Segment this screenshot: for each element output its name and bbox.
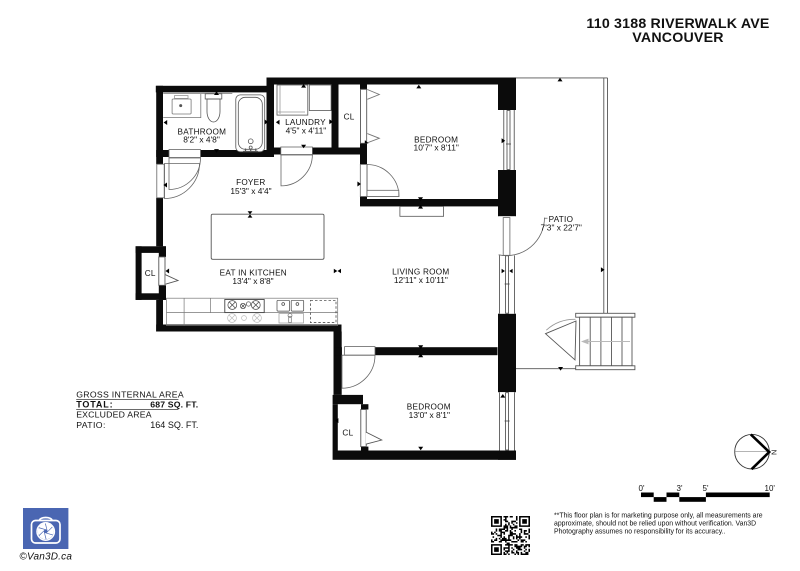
svg-text:15'3" x 4'4": 15'3" x 4'4" xyxy=(230,186,271,196)
svg-text:CL: CL xyxy=(342,428,353,437)
svg-text:CL: CL xyxy=(344,113,355,122)
svg-text:164 SQ. FT.: 164 SQ. FT. xyxy=(150,420,198,430)
svg-text:3': 3' xyxy=(677,484,683,493)
svg-text:8'2" x 4'8": 8'2" x 4'8" xyxy=(183,135,220,145)
svg-text:0': 0' xyxy=(639,484,645,493)
svg-text:©Van3D.ca: ©Van3D.ca xyxy=(19,552,72,563)
svg-text:13'0" x 8'1": 13'0" x 8'1" xyxy=(409,410,450,420)
svg-text:GROSS INTERNAL AREA: GROSS INTERNAL AREA xyxy=(76,389,184,399)
svg-text:687 SQ. FT.: 687 SQ. FT. xyxy=(150,400,198,410)
svg-text:approximate, should not be rel: approximate, should not be relied upon w… xyxy=(554,521,756,528)
svg-text:PATIO:: PATIO: xyxy=(76,420,106,430)
svg-text:EXCLUDED AREA: EXCLUDED AREA xyxy=(76,410,152,420)
svg-text:13'4" x 8'8": 13'4" x 8'8" xyxy=(232,276,273,286)
svg-text:VANCOUVER: VANCOUVER xyxy=(632,30,723,46)
svg-text:5': 5' xyxy=(703,484,709,493)
svg-text:4'5" x 4'11": 4'5" x 4'11" xyxy=(286,126,327,136)
svg-text:Photography assumes no respons: Photography assumes no responsibility fo… xyxy=(554,529,726,536)
svg-text:TOTAL:: TOTAL: xyxy=(76,400,113,410)
svg-text:10': 10' xyxy=(765,484,776,493)
svg-text:12'11" x 10'11": 12'11" x 10'11" xyxy=(394,275,448,285)
svg-text:10'7" x 8'11": 10'7" x 8'11" xyxy=(414,143,459,153)
svg-text:7'3" x 22'7": 7'3" x 22'7" xyxy=(541,223,582,233)
svg-text:CL: CL xyxy=(145,269,156,278)
svg-text:N: N xyxy=(769,450,778,455)
svg-text:**This floor plan is for marke: **This floor plan is for marketing purpo… xyxy=(554,513,763,520)
